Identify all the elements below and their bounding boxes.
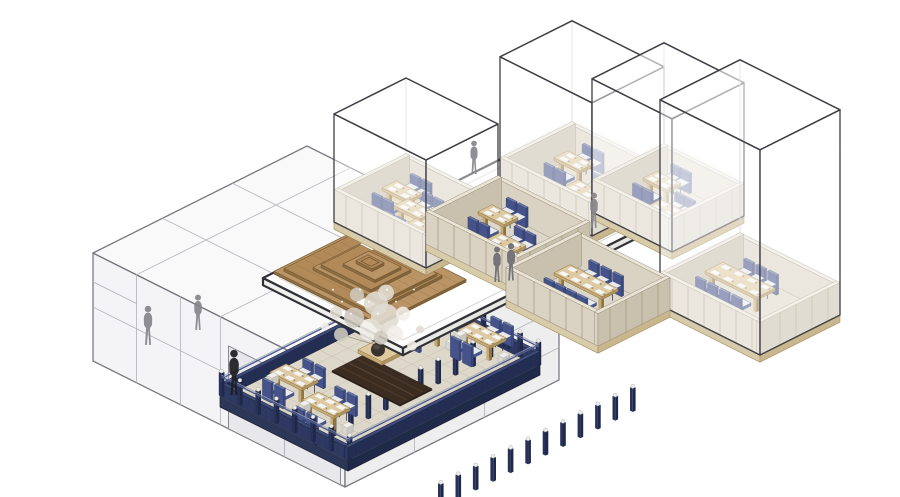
axonometric-scene-canvas	[0, 0, 900, 497]
isometric-architectural-diagram	[0, 0, 900, 497]
room-east-large-group	[660, 60, 840, 362]
